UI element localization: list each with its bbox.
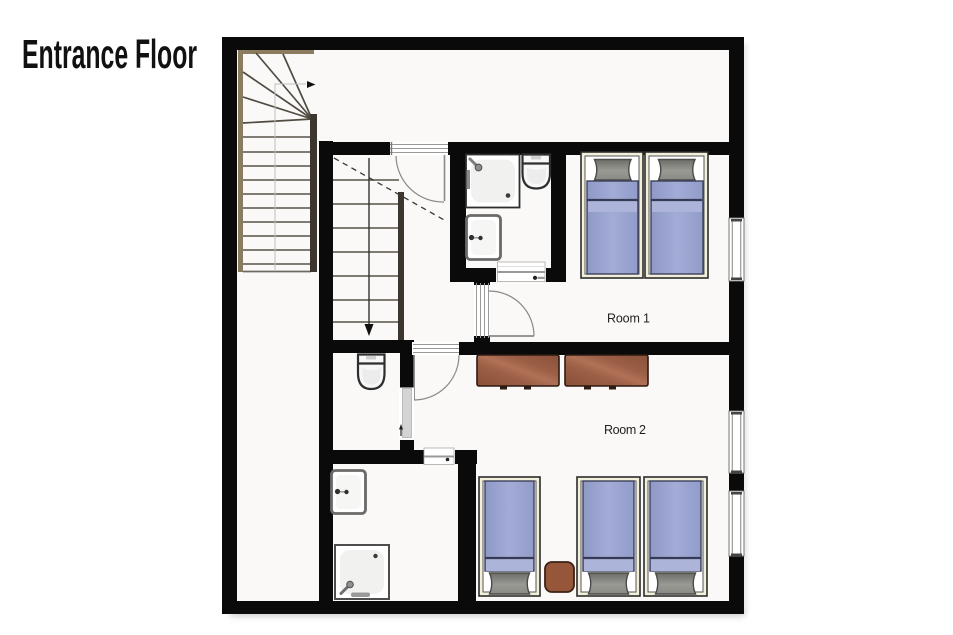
svg-text:Room 1: Room 1 [607, 312, 650, 326]
svg-text:Entrance Floor: Entrance Floor [22, 31, 197, 77]
svg-text:Room 2: Room 2 [604, 423, 646, 437]
